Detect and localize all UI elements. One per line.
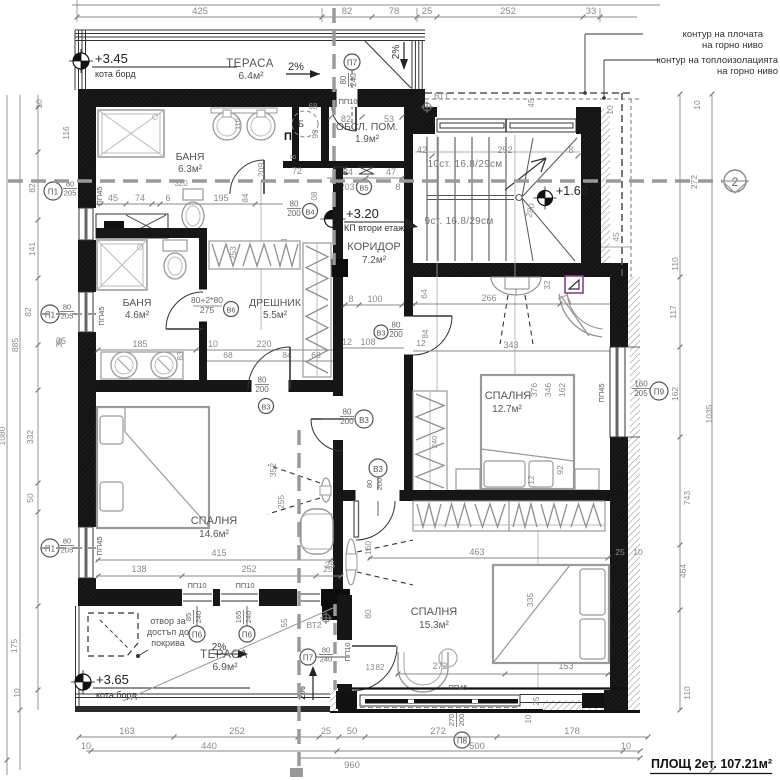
svg-text:ПП45: ПП45 [97,306,106,325]
svg-text:П7: П7 [347,59,358,68]
svg-text:14.6м²: 14.6м² [199,529,229,540]
svg-text:10: 10 [12,688,22,698]
svg-text:332: 332 [25,430,35,444]
svg-text:275: 275 [200,305,214,315]
svg-text:960: 960 [344,760,360,771]
svg-text:205: 205 [61,546,74,555]
svg-text:отвор за: отвор за [150,616,185,626]
svg-text:2%: 2% [212,642,227,653]
svg-text:БАНЯ: БАНЯ [176,151,205,163]
svg-text:25: 25 [422,6,433,17]
svg-text:В4: В4 [305,208,314,217]
svg-text:10ст. 16.8/29см: 10ст. 16.8/29см [428,159,503,170]
svg-text:В3: В3 [359,416,369,425]
svg-text:2%: 2% [288,61,304,73]
svg-text:10: 10 [633,547,643,557]
svg-text:82: 82 [27,183,37,193]
svg-text:464: 464 [678,564,688,578]
svg-text:СПАЛНЯ: СПАЛНЯ [485,390,532,402]
svg-text:252: 252 [229,726,245,737]
svg-text:220: 220 [256,339,271,349]
svg-text:35: 35 [54,338,64,348]
svg-text:П7: П7 [303,654,314,663]
svg-text:80: 80 [322,646,330,655]
svg-text:10: 10 [208,339,218,349]
svg-text:В3: В3 [373,465,383,474]
svg-text:10: 10 [81,741,91,751]
svg-text:255: 255 [276,495,286,509]
svg-text:885: 885 [10,338,20,352]
svg-text:БАНЯ: БАНЯ [123,297,152,309]
svg-text:8: 8 [568,145,573,155]
svg-text:47: 47 [386,167,396,177]
svg-text:141: 141 [27,242,37,256]
svg-text:6: 6 [165,193,170,203]
svg-text:195: 195 [213,193,228,203]
svg-text:440: 440 [201,741,217,752]
svg-text:ПП45: ПП45 [95,536,104,555]
svg-text:346: 346 [543,383,553,397]
svg-text:82: 82 [23,307,33,317]
svg-text:376: 376 [529,383,539,397]
svg-text:+3.20: +3.20 [346,206,379,221]
svg-text:13: 13 [366,663,375,672]
svg-text:15.3м²: 15.3м² [419,620,449,631]
svg-text:78: 78 [389,6,400,17]
svg-text:П8: П8 [457,737,468,746]
svg-text:343: 343 [503,340,518,350]
svg-text:116: 116 [233,118,242,130]
svg-text:92: 92 [555,465,565,475]
svg-text:+3.65: +3.65 [96,672,129,687]
svg-text:4.6м²: 4.6м² [125,310,150,321]
svg-text:контур на топлоизолацията: контур на топлоизолацията [657,55,779,66]
svg-text:335: 335 [525,593,535,607]
svg-text:425: 425 [192,6,208,17]
svg-text:80: 80 [392,321,401,330]
svg-text:153: 153 [558,661,573,671]
svg-text:252: 252 [500,6,516,17]
svg-text:272: 272 [430,726,446,737]
svg-text:6.3м²: 6.3м² [178,164,203,175]
svg-text:8: 8 [395,182,400,192]
svg-text:6.9м²: 6.9м² [212,661,238,673]
svg-text:6.4м²: 6.4м² [238,70,264,82]
svg-text:2: 2 [732,175,739,189]
svg-text:205: 205 [64,189,77,198]
svg-text:на горно ниво: на горно ниво [702,40,763,51]
svg-text:272: 272 [689,175,699,189]
svg-text:П6: П6 [192,631,203,640]
svg-text:80: 80 [339,75,348,84]
svg-text:270: 270 [447,714,456,727]
svg-text:10: 10 [524,714,533,723]
svg-text:463: 463 [469,547,484,557]
svg-text:КОРИДОР: КОРИДОР [347,241,400,253]
svg-text:72: 72 [292,166,302,176]
svg-text:272: 272 [432,661,447,671]
svg-text:74: 74 [135,193,145,203]
svg-text:240: 240 [320,655,333,664]
svg-text:110: 110 [682,686,692,700]
svg-text:достъп до: достъп до [147,627,189,637]
svg-text:138: 138 [131,564,146,574]
svg-text:55: 55 [280,618,289,627]
svg-text:ДРЕШНИК: ДРЕШНИК [249,297,302,309]
svg-text:205: 205 [634,389,648,398]
svg-text:50: 50 [25,493,35,503]
svg-text:ПП45: ПП45 [448,683,467,692]
svg-text:160: 160 [363,541,373,555]
svg-text:108: 108 [360,337,375,347]
svg-text:ВТ1: ВТ1 [434,91,449,101]
svg-text:П: П [284,131,292,143]
svg-text:В3: В3 [261,403,270,412]
svg-text:25: 25 [532,696,541,705]
svg-text:64: 64 [419,289,429,299]
svg-text:12.7м²: 12.7м² [492,404,522,415]
svg-text:25: 25 [615,547,625,557]
svg-text:25: 25 [321,726,331,736]
svg-text:В6: В6 [226,306,235,315]
svg-text:5.5м²: 5.5м² [263,310,288,321]
svg-text:покрива: покрива [151,638,185,648]
svg-text:1035: 1035 [704,404,714,423]
svg-text:209: 209 [256,163,266,177]
svg-text:8: 8 [348,294,353,304]
svg-text:10: 10 [692,100,702,110]
svg-text:12: 12 [526,475,536,485]
svg-text:240: 240 [194,611,203,624]
svg-text:165: 165 [234,611,243,624]
svg-text:80: 80 [63,303,71,312]
svg-text:116: 116 [61,126,71,140]
svg-text:175: 175 [9,639,19,653]
svg-text:8: 8 [289,154,298,159]
svg-text:9ст. 16.8/29см: 9ст. 16.8/29см [424,216,493,227]
svg-text:80+2*80: 80+2*80 [191,295,223,305]
svg-text:82: 82 [341,114,351,124]
svg-text:93: 93 [311,129,320,138]
svg-text:253: 253 [229,246,238,260]
svg-text:252: 252 [497,145,512,155]
svg-text:80: 80 [258,376,267,385]
svg-text:Б: Б [298,119,304,129]
svg-text:П6: П6 [242,631,253,640]
svg-text:контур на плочата: контур на плочата [683,29,764,40]
svg-text:500: 500 [469,741,485,752]
svg-text:415: 415 [211,548,226,558]
svg-text:10: 10 [621,741,631,751]
svg-text:163: 163 [119,726,135,737]
svg-text:266: 266 [481,293,496,303]
svg-text:КП втори етаж: КП втори етаж [344,223,404,233]
svg-text:ПП10: ПП10 [338,97,357,106]
svg-text:ПП45: ПП45 [597,383,606,402]
svg-text:162: 162 [557,383,567,397]
svg-text:110: 110 [670,257,680,271]
svg-text:45: 45 [108,193,118,203]
svg-text:82: 82 [376,663,385,672]
svg-text:ПП10: ПП10 [235,581,254,590]
svg-text:84: 84 [241,193,250,202]
svg-text:ВТ2: ВТ2 [306,620,321,630]
svg-text:200: 200 [340,417,354,426]
svg-text:352: 352 [268,463,278,477]
svg-text:кота борд: кота борд [95,69,136,79]
svg-text:12: 12 [342,337,352,347]
svg-text:80: 80 [343,408,352,417]
svg-text:68: 68 [309,102,318,111]
svg-text:160: 160 [634,380,648,389]
svg-text:68: 68 [223,350,233,360]
svg-text:83: 83 [176,351,185,360]
svg-text:205: 205 [61,312,74,321]
svg-text:53: 53 [384,114,394,124]
svg-text:1080: 1080 [0,426,7,445]
svg-text:200: 200 [375,478,384,491]
svg-text:25: 25 [323,564,333,574]
svg-text:СПАЛНЯ: СПАЛНЯ [411,606,458,618]
svg-text:П9: П9 [654,388,665,397]
svg-text:80: 80 [365,480,374,488]
svg-text:+3.45: +3.45 [95,51,128,66]
svg-text:12: 12 [416,338,426,348]
svg-text:45: 45 [611,232,621,242]
svg-text:2%: 2% [391,45,402,60]
svg-text:32: 32 [542,280,552,290]
svg-text:ПП10: ПП10 [187,581,206,590]
svg-text:1.9м²: 1.9м² [355,134,380,145]
svg-text:42: 42 [417,145,427,155]
svg-text:117: 117 [668,305,678,319]
svg-text:ПП10: ПП10 [343,642,352,661]
svg-text:50: 50 [347,726,358,737]
svg-text:В5: В5 [359,184,368,193]
svg-text:240: 240 [430,436,439,449]
svg-text:185: 185 [132,339,147,349]
svg-text:80: 80 [63,537,71,546]
svg-text:82: 82 [342,6,353,17]
svg-text:кота борд: кота борд [96,690,137,700]
svg-text:СПАЛНЯ: СПАЛНЯ [191,515,238,527]
svg-text:80: 80 [363,609,373,619]
svg-text:240: 240 [349,73,358,87]
svg-text:100: 100 [367,294,382,304]
svg-text:08: 08 [310,191,319,200]
svg-text:+1.68: +1.68 [556,184,588,198]
svg-text:П1: П1 [48,188,59,197]
svg-text:200: 200 [287,209,301,218]
svg-text:178: 178 [564,726,580,737]
svg-text:200: 200 [389,330,403,339]
svg-text:10: 10 [34,99,44,109]
svg-text:68: 68 [311,350,321,360]
svg-text:240: 240 [244,611,253,624]
svg-text:на горно ниво: на горно ниво [717,66,778,77]
svg-text:ТЕРАСА: ТЕРАСА [226,58,274,70]
svg-text:252: 252 [241,564,256,574]
svg-text:200: 200 [457,714,466,727]
svg-text:7.2м²: 7.2м² [362,255,387,266]
svg-text:ПЛОЩ 2ет. 107.21м²: ПЛОЩ 2ет. 107.21м² [651,757,772,771]
svg-text:33: 33 [586,6,597,17]
svg-text:В3: В3 [376,329,385,338]
svg-text:80: 80 [290,200,299,209]
svg-text:10: 10 [605,105,615,115]
svg-text:200: 200 [255,385,269,394]
svg-text:743: 743 [682,491,692,505]
svg-text:162: 162 [670,387,680,401]
